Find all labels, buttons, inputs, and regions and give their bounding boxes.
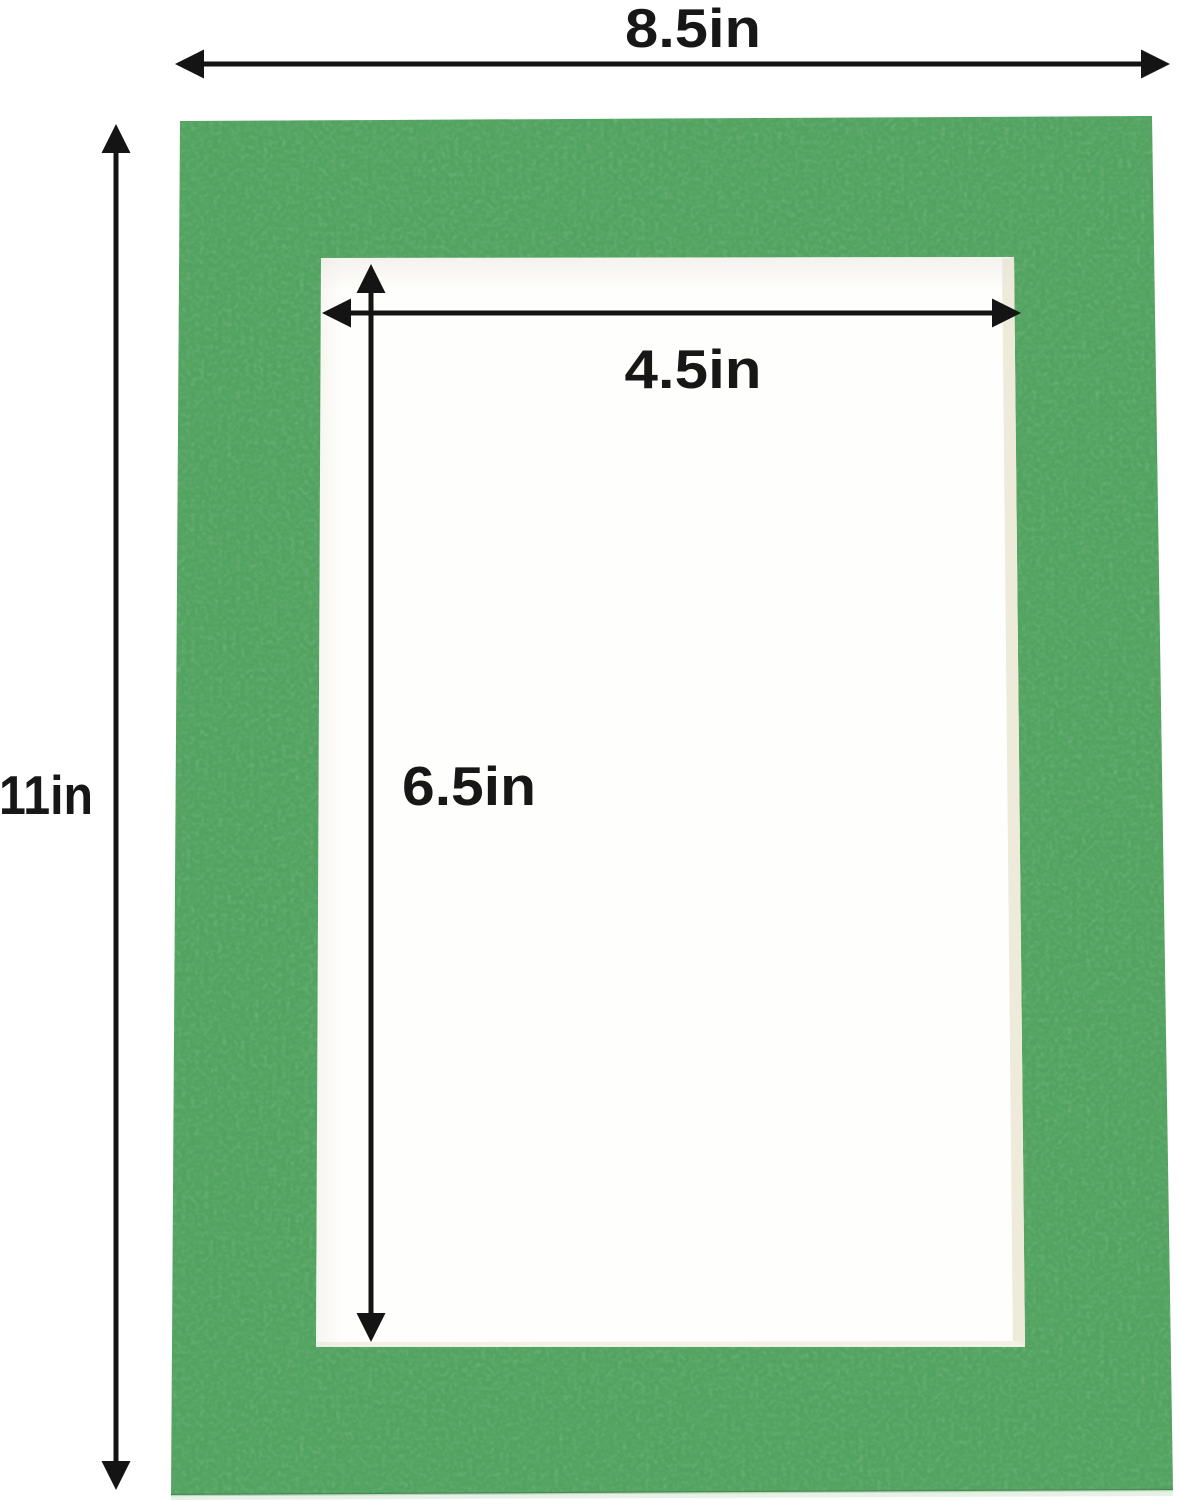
svg-text:8.5in: 8.5in [625, 0, 761, 59]
svg-text:4.5in: 4.5in [625, 338, 762, 400]
svg-text:6.5in: 6.5in [402, 755, 536, 817]
svg-text:11in: 11in [0, 764, 93, 826]
